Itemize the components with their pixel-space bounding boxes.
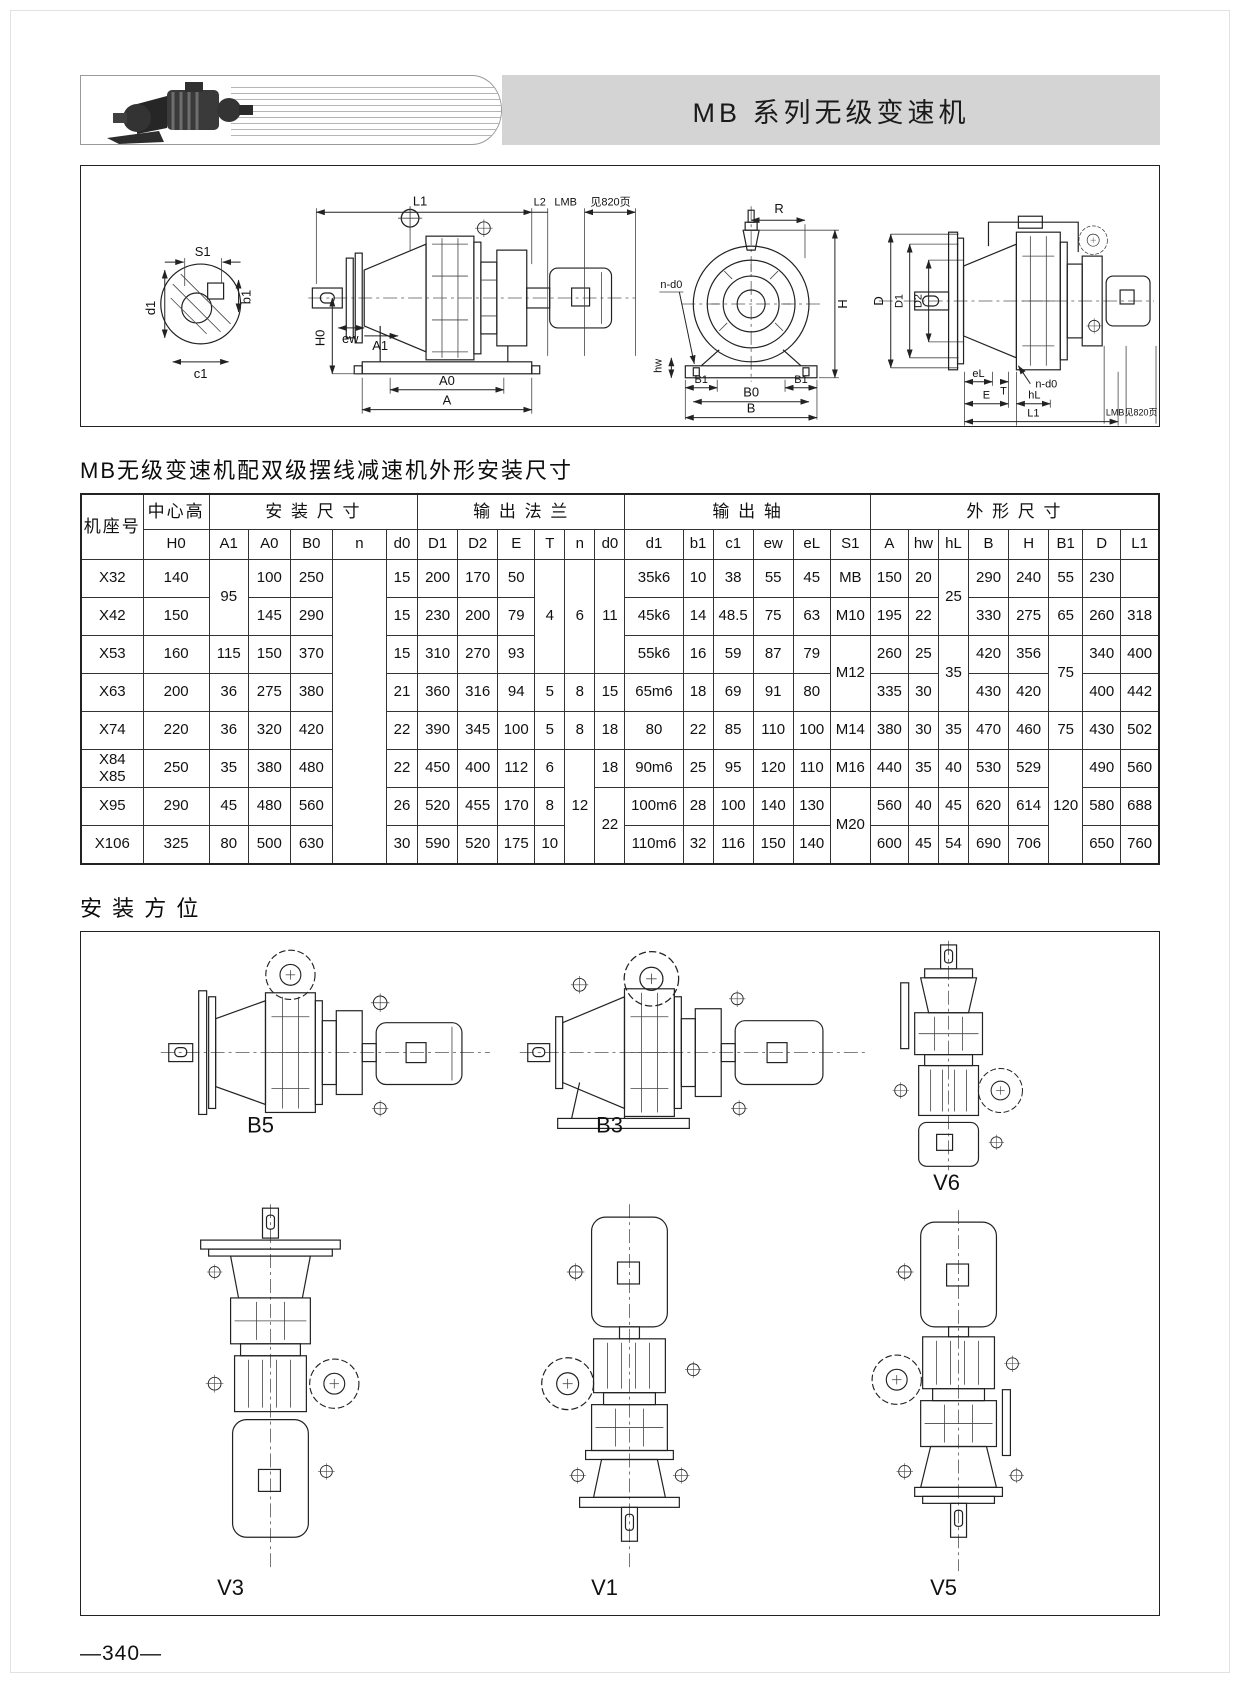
col-a0: A0 [248, 530, 290, 560]
mount-label-v3: V3 [217, 1575, 244, 1600]
side-view-drawing: L1 L2 LMB 见820页 H0 ew A1 A0 A [308, 193, 635, 413]
col-n-install: n [332, 530, 386, 560]
table-row: X63200362753802136031694581565m618699180… [81, 674, 1159, 712]
col-h0: H0 [143, 530, 209, 560]
col-e: E [498, 530, 535, 560]
mount-v6-drawing [892, 941, 1022, 1170]
dim-b0: B0 [743, 385, 759, 400]
mount-v5-drawing [872, 1210, 1024, 1571]
table-row: X742203632042022390345100581880228511010… [81, 712, 1159, 750]
mount-v3-drawing [201, 1204, 359, 1571]
col-c1: c1 [713, 530, 753, 560]
table-section-title: MB无级变速机配双级摆线减速机外形安装尺寸 [80, 453, 1160, 485]
mount-b5-drawing [161, 950, 490, 1116]
dim-s1: S1 [195, 244, 211, 259]
dim-hl: hL [1028, 390, 1040, 402]
col-b1-outline: B1 [1049, 530, 1083, 560]
col-d0-install: d0 [386, 530, 417, 560]
dim-a: A [443, 393, 452, 408]
table-sub-header-row: H0A1A0B0nd0 D1D2ETnd0 d1b1c1eweLS1 AhwhL… [81, 530, 1159, 560]
mount-label-v5: V5 [930, 1575, 957, 1600]
col-t: T [535, 530, 565, 560]
dimension-table: 机座号 中心高 安 装 尺 寸 输 出 法 兰 输 出 轴 外 形 尺 寸 H0… [80, 493, 1160, 865]
product-photo [89, 76, 279, 145]
group-center-height: 中心高 [143, 494, 209, 530]
group-outline: 外 形 尺 寸 [870, 494, 1159, 530]
mount-label-b3: B3 [596, 1112, 623, 1137]
col-s1: S1 [830, 530, 870, 560]
dim-ew: ew [342, 331, 359, 346]
dim-lmb: LMB [554, 196, 577, 208]
dim-b1-right: B1 [794, 374, 807, 386]
catalog-page: MB 系列无级变速机 S1 [80, 0, 1160, 1666]
col-h: H [1009, 530, 1049, 560]
table-row: X952904548056026520455170822100m62810014… [81, 788, 1159, 826]
dim-lmb-flange: LMB [1106, 408, 1124, 418]
mount-label-v6: V6 [933, 1170, 960, 1195]
col-ew: ew [753, 530, 793, 560]
group-shaft: 输 出 轴 [625, 494, 870, 530]
col-header-model: 机座号 [81, 494, 143, 560]
col-d2: D2 [458, 530, 498, 560]
dim-h: H [835, 299, 850, 308]
col-a1: A1 [209, 530, 248, 560]
table-group-header-row: 机座号 中心高 安 装 尺 寸 输 出 法 兰 输 出 轴 外 形 尺 寸 [81, 494, 1159, 530]
col-hw: hw [908, 530, 938, 560]
mount-b3-drawing [520, 952, 869, 1129]
col-el: eL [793, 530, 830, 560]
dim-e: E [983, 390, 990, 402]
banner-stripes-panel [80, 75, 502, 145]
dim-c1: c1 [194, 366, 208, 381]
col-l1: L1 [1121, 530, 1159, 560]
col-d1-shaft: d1 [625, 530, 683, 560]
col-d1-flange: D1 [418, 530, 458, 560]
page-number: —340— [80, 1642, 1160, 1666]
dim-d1-flange: D1 [894, 294, 906, 308]
dim-l2: L2 [534, 196, 546, 208]
dim-el: eL [972, 368, 984, 380]
table-row: X32140951002501520017050461135k610385545… [81, 560, 1159, 598]
dim-l1: L1 [413, 193, 427, 208]
mounting-drawings-box: B5 [80, 931, 1160, 1616]
page-title: MB 系列无级变速机 [502, 75, 1160, 145]
table-row: X84 X8525035380480224504001126121890m625… [81, 750, 1159, 788]
col-b1-shaft: b1 [683, 530, 713, 560]
col-b: B [969, 530, 1009, 560]
dim-t: T [1000, 386, 1007, 398]
dim-hw: hw [652, 359, 664, 373]
dim-l1-flange: L1 [1027, 408, 1039, 420]
dim-d1: d1 [143, 301, 158, 315]
front-view-drawing: R H n-d0 hw B1 B1 B0 B [652, 201, 849, 419]
dim-b1: b1 [239, 290, 254, 304]
dimension-drawings-box: S1 d1 b1 c1 [80, 165, 1160, 427]
dim-n-d0: n-d0 [660, 279, 682, 291]
mount-label-v1: V1 [591, 1575, 618, 1600]
col-d0-flange: d0 [595, 530, 625, 560]
see-page-820-flange: 见820页 [1125, 408, 1158, 418]
col-n-flange: n [565, 530, 595, 560]
shaft-section-drawing: S1 d1 b1 c1 [143, 244, 254, 381]
dim-r: R [774, 201, 783, 216]
mounting-section-title: 安 装 方 位 [80, 891, 1160, 923]
col-a: A [870, 530, 908, 560]
mount-v1-drawing [542, 1204, 702, 1571]
dim-a1: A1 [372, 338, 388, 353]
see-page-820: 见820页 [590, 196, 630, 208]
col-d-outline: D [1083, 530, 1121, 560]
dim-b1-left: B1 [695, 374, 708, 386]
flange-view-drawing: D D1 D2 [871, 216, 1158, 425]
col-hl: hL [938, 530, 968, 560]
col-b0: B0 [290, 530, 332, 560]
mount-label-b5: B5 [247, 1112, 274, 1137]
header-banner: MB 系列无级变速机 [80, 75, 1160, 145]
dim-b: B [747, 401, 756, 416]
dim-d: D [871, 296, 886, 305]
group-install: 安 装 尺 寸 [209, 494, 417, 530]
group-flange: 输 出 法 兰 [418, 494, 625, 530]
dim-h0: H0 [312, 330, 327, 347]
dim-a0: A0 [439, 373, 455, 388]
